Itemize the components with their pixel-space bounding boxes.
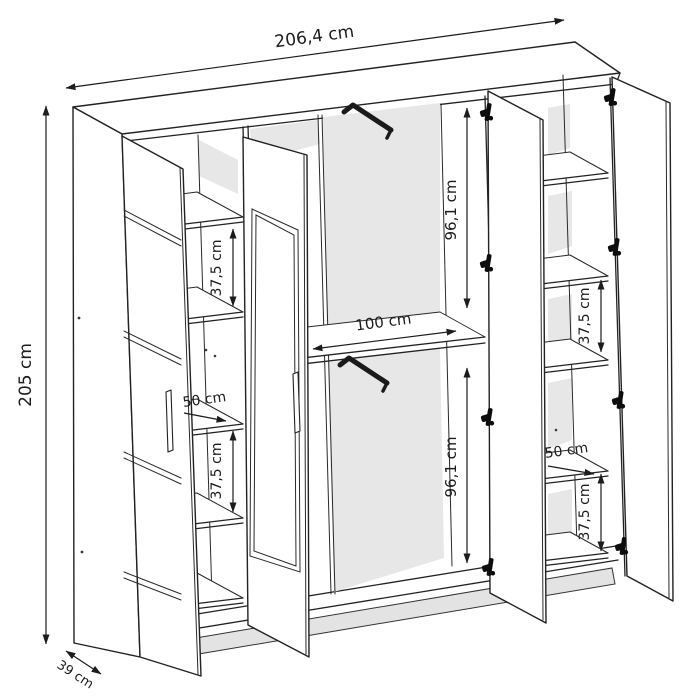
dim-right-spacing-lower: 37,5 cm (577, 474, 601, 551)
right-door (603, 77, 673, 601)
dim-left-spacing-upper-label: 37,5 cm (209, 240, 225, 297)
right-column-shading (548, 104, 570, 155)
cam-dot (205, 349, 208, 352)
right-column-shading (548, 378, 572, 449)
cam-dot (78, 317, 81, 320)
dim-right-spacing-lower-label: 37,5 cm (577, 484, 593, 541)
dim-left-spacing-upper: 37,5 cm (209, 229, 233, 306)
dim-hanging-upper-label: 96,1 cm (442, 179, 460, 240)
cam-dot (555, 429, 558, 432)
dim-depth: 39 cm (54, 651, 101, 692)
center-right-door (479, 91, 546, 623)
dim-left-spacing-lower: 37,5 cm (209, 431, 233, 512)
wardrobe-technical-diagram: 206,4 cm 205 cm 39 cm 96,1 cm 96,1 cm 10… (0, 0, 700, 700)
dim-depth-label: 39 cm (54, 658, 96, 693)
dim-hanging-upper: 96,1 cm (442, 108, 467, 308)
dim-hanging-lower-label: 96,1 cm (442, 436, 460, 497)
dim-overall-height: 205 cm (16, 106, 46, 644)
diagram-canvas: 206,4 cm 205 cm 39 cm 96,1 cm 96,1 cm 10… (0, 0, 700, 700)
dim-overall-height-label: 205 cm (16, 343, 36, 407)
center-right-door-panel (488, 91, 546, 623)
dim-left-spacing-lower-label: 37,5 cm (209, 443, 225, 500)
left-column-back-shading (199, 140, 238, 194)
plinth (160, 568, 615, 660)
mirror-door (243, 137, 309, 657)
wardrobe-body (73, 42, 673, 676)
cam-dot (81, 551, 84, 554)
dim-right-spacing-upper: 37,5 cm (577, 280, 601, 352)
right-door-panel (612, 77, 673, 601)
dim-hanging-lower: 96,1 cm (442, 368, 467, 563)
cam-dot (214, 355, 217, 358)
dim-overall-width-label: 206,4 cm (273, 22, 355, 53)
dim-right-spacing-upper-label: 37,5 cm (577, 288, 593, 345)
center-upper-back-shading (323, 103, 440, 327)
